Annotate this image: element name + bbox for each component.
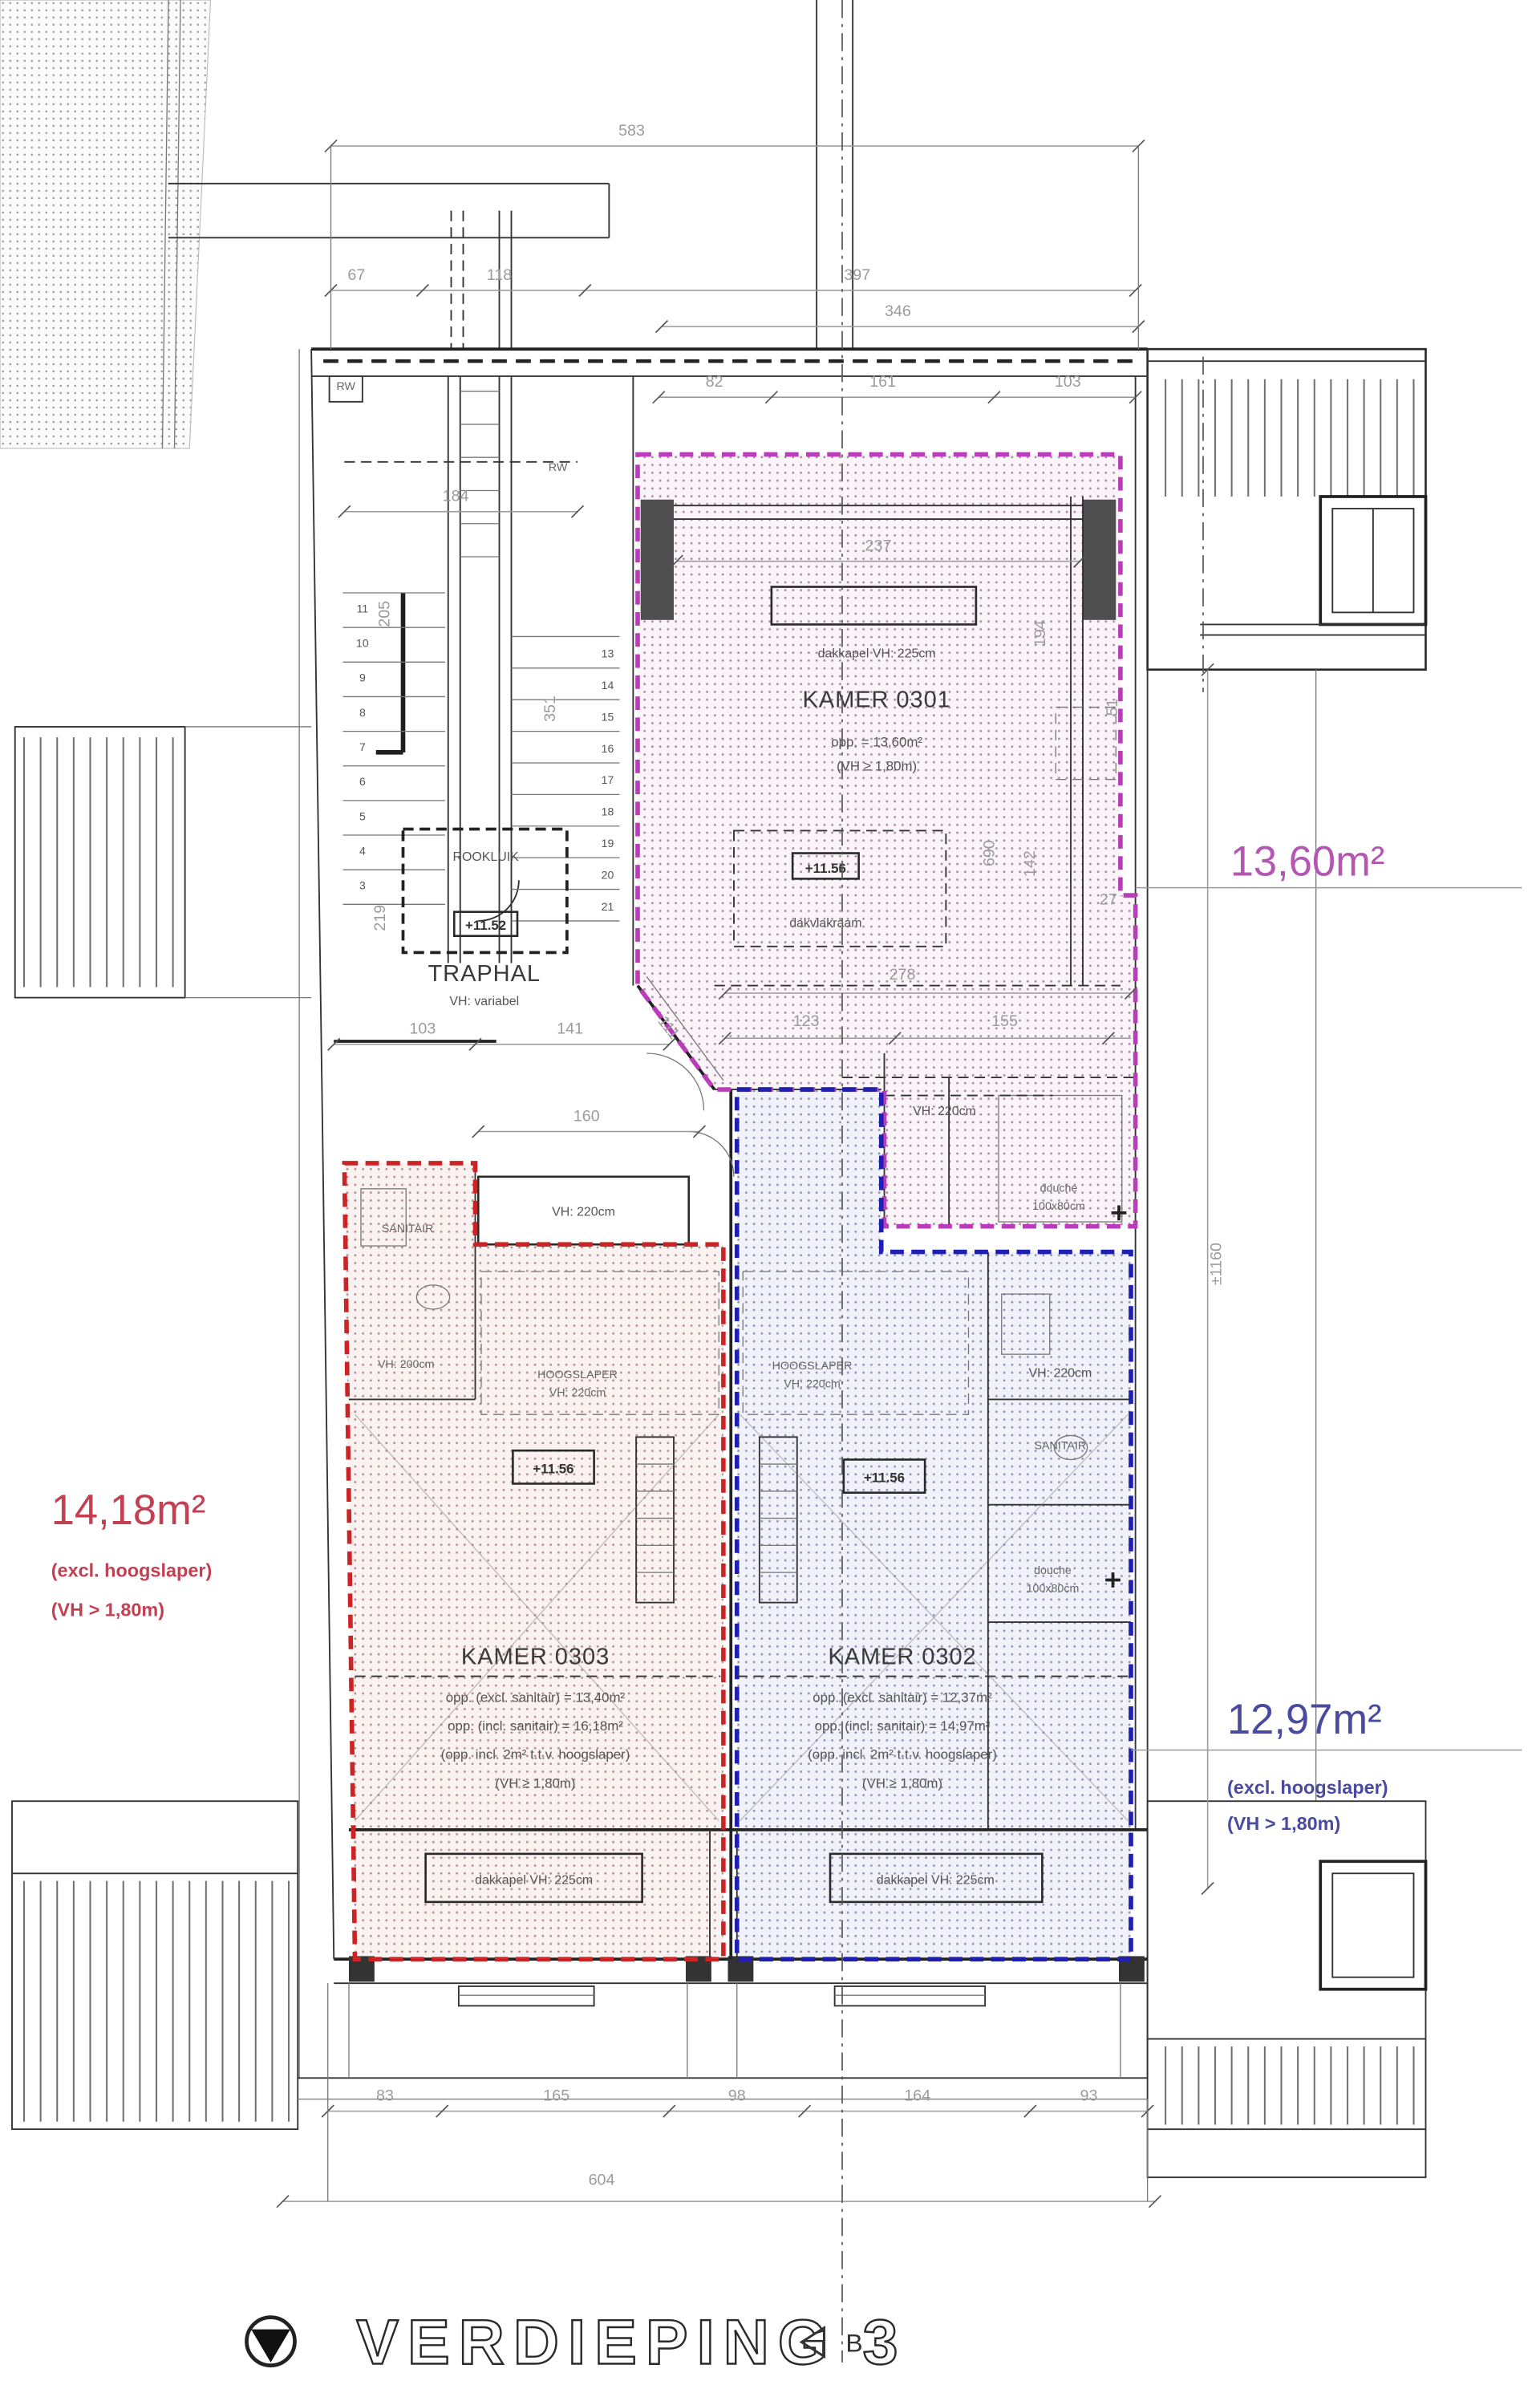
kamer0303-level: +11.56: [533, 1461, 573, 1476]
kamer0301-fill: [638, 454, 1136, 1226]
kamer0303-sanitair: SANITAIR: [382, 1223, 434, 1235]
kamer0303-area-excl: opp. (excl. sanitair) = 13,40m²: [446, 1689, 626, 1705]
kamer0303-name: KAMER 0303: [461, 1645, 610, 1670]
dim-237: 237: [865, 537, 892, 555]
kamer0302-area-excl: opp. (excl. sanitair) = 12,37m²: [813, 1689, 992, 1705]
kamer0302-hoogslaper-vh: VH: 220cm: [784, 1377, 840, 1390]
kamer0302-vh: (VH ≥ 1,80m): [862, 1775, 942, 1791]
left-wall: [311, 349, 334, 1959]
stair-number: 4: [359, 844, 366, 857]
dormer-cheek-right: [1083, 500, 1116, 620]
dim-161: 161: [869, 373, 896, 391]
stair-number: 14: [602, 679, 614, 692]
section-marker-label: B: [845, 2329, 862, 2358]
dim-1160: ±1160: [1208, 1243, 1226, 1285]
dim-205: 205: [376, 601, 394, 627]
kamer0303-note: (opp. incl. 2m² t.t.v. hoogslaper): [441, 1747, 630, 1762]
dim-141: 141: [557, 1020, 583, 1038]
floorplan-drawing: 11 10 9 8 7 6 5 4 3 13 14 15 16 17 18 19…: [0, 0, 1540, 2385]
dim-123: 123: [793, 1012, 820, 1030]
kamer0302-hoogslaper: HOOGSLAPER: [772, 1360, 853, 1373]
neighbour-stipple-area: [0, 0, 211, 448]
stair-number: 10: [356, 637, 369, 650]
stair-number: 8: [359, 706, 366, 719]
dim-346: 346: [885, 302, 911, 320]
landing-vh: VH: 220cm: [552, 1206, 615, 1219]
stair-number: 11: [357, 602, 369, 615]
dim-98: 98: [728, 2087, 746, 2104]
dim-103: 103: [409, 1020, 436, 1038]
dim-103-top: 103: [1055, 373, 1081, 391]
dim-82: 82: [706, 373, 723, 391]
kamer0302-area-incl: opp. (incl. sanitair) = 14,97m²: [815, 1718, 991, 1734]
traphal-name: TRAPHAL: [428, 961, 541, 987]
dim-397: 397: [844, 266, 870, 284]
dakvlakraam-label: dakvlakraam: [789, 916, 861, 930]
rw-label: RW: [337, 380, 356, 393]
dim-51: 51: [1104, 699, 1121, 716]
north-arrow-icon: [251, 2330, 290, 2363]
neighbour-window-2-inner: [1332, 1873, 1413, 1977]
kamer0302-callout: 12,97m²: [1227, 1696, 1382, 1743]
dim-184: 184: [443, 488, 469, 505]
dim-165: 165: [543, 2087, 569, 2104]
kamer0302-dakkapel: dakkapel VH: 225cm: [877, 1873, 995, 1887]
dim-93: 93: [1080, 2087, 1098, 2104]
kamer0301-callout: 13,60m²: [1230, 838, 1385, 886]
kamer0303-callout-note1: (excl. hoogslaper): [51, 1560, 213, 1581]
kamer0303-fill: [344, 1163, 723, 1959]
neighbour-window-2: [1320, 1861, 1425, 1989]
dormer-window-0302: [835, 1986, 986, 2006]
dim-67: 67: [347, 266, 365, 284]
balcony-left-railing: [19, 737, 180, 987]
stair-number: 13: [602, 647, 614, 660]
dim-142: 142: [1021, 850, 1039, 877]
traphal-vh: VH: variabel: [449, 995, 519, 1008]
rookluik-box: [403, 829, 567, 953]
stair-treads-center: [460, 391, 500, 557]
rw-label: RW: [549, 461, 568, 474]
kamer0302-callout-note1: (excl. hoogslaper): [1227, 1777, 1388, 1798]
dim-160: 160: [573, 1107, 600, 1125]
kamer0303-callout-note2: (VH > 1,80m): [51, 1600, 164, 1620]
balcony-bottom-left-railing: [18, 1881, 292, 2122]
door-arc: [689, 1132, 734, 1177]
dim-118: 118: [487, 266, 512, 284]
kamer0302-note: (opp. incl. 2m² t.t.v. hoogslaper): [808, 1747, 997, 1762]
kamer0302-callout-note2: (VH > 1,80m): [1227, 1813, 1340, 1834]
kamer0302-douche: douche: [1034, 1564, 1072, 1577]
stair-number: 5: [359, 809, 366, 822]
dim-219: 219: [371, 905, 389, 931]
kamer0301-dakkapel-label: dakkapel VH: 225cm: [818, 647, 936, 661]
stair-number: 6: [359, 775, 366, 788]
kamer0303-area-incl: opp. (incl. sanitair) = 16,18m²: [448, 1718, 623, 1734]
stair-number: 18: [602, 805, 614, 818]
stair-number: 7: [359, 740, 366, 753]
rookluik-label: ROOKLUIK: [452, 850, 519, 864]
dim-604: 604: [589, 2172, 615, 2189]
kamer0301-name: KAMER 0301: [802, 688, 950, 713]
kamer0302-sanitair: SANITAIR: [1035, 1439, 1087, 1452]
kamer0303-sanitair-vh: VH: 200cm: [378, 1358, 434, 1371]
stair-number: 20: [602, 868, 614, 881]
traphal-level: +11.52: [465, 918, 506, 933]
kamer0301-level: +11.56: [805, 861, 846, 876]
kamer0303-dakkapel: dakkapel VH: 225cm: [475, 1873, 593, 1887]
kamer0302-level: +11.56: [864, 1470, 905, 1486]
staircase: 11 10 9 8 7 6 5 4 3 13 14 15 16 17 18 19…: [343, 376, 620, 963]
kamer0301-douche: douche: [1040, 1182, 1078, 1195]
dim-27: 27: [1100, 890, 1117, 908]
kamer0302-name: KAMER 0302: [828, 1645, 976, 1670]
kamer0303-hoogslaper-vh: VH: 220cm: [549, 1387, 606, 1400]
dormer-cheek-left: [641, 500, 674, 620]
dim-583: 583: [618, 122, 645, 140]
kamer0301-sanitair-vh: VH: 220cm: [913, 1105, 976, 1118]
stair-number: 17: [602, 773, 614, 786]
dormer-window-0303: [459, 1986, 594, 2006]
dim-164: 164: [904, 2087, 930, 2104]
stair-number: 3: [359, 879, 366, 892]
dim-194: 194: [1031, 620, 1049, 647]
floorplan-page: 11 10 9 8 7 6 5 4 3 13 14 15 16 17 18 19…: [0, 0, 1540, 2385]
kamer0303-vh: (VH ≥ 1,80m): [495, 1775, 575, 1791]
stair-number: 9: [359, 671, 366, 684]
kamer0302-sanitair-vh: VH: 220cm: [1028, 1366, 1092, 1380]
kamer0301-area: opp. = 13,60m²: [831, 734, 922, 749]
stair-number: 16: [602, 742, 614, 755]
neighbour-right-hatch: [1155, 379, 1418, 497]
kamer0303-hoogslaper: HOOGSLAPER: [537, 1369, 618, 1381]
balcony-bottom-right-railing: [1155, 2046, 1421, 2125]
stair-number: 15: [602, 710, 614, 723]
kamer0302-douche-size: 100x80cm: [1027, 1582, 1080, 1595]
kamer0303-callout: 14,18m²: [51, 1487, 206, 1534]
stair-number: 19: [602, 837, 614, 850]
kamer0301-douche-size: 100x80cm: [1032, 1200, 1085, 1213]
kamer0301-vh: (VH ≥ 1,80m): [837, 758, 917, 773]
dim-155: 155: [991, 1012, 1018, 1030]
dim-278: 278: [890, 966, 916, 984]
stair-number: 21: [602, 900, 614, 913]
dim-83: 83: [376, 2087, 394, 2104]
dim-690: 690: [980, 840, 998, 866]
dim-351: 351: [541, 696, 559, 722]
